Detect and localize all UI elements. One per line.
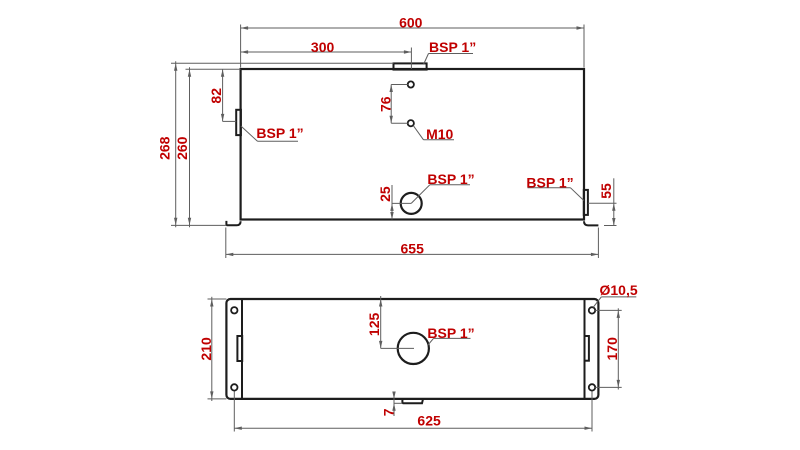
svg-text:55: 55 <box>598 183 614 199</box>
svg-text:210: 210 <box>198 337 214 361</box>
svg-text:BSP 1”: BSP 1” <box>427 171 474 187</box>
svg-text:7: 7 <box>381 408 397 416</box>
svg-text:125: 125 <box>366 313 382 337</box>
svg-text:82: 82 <box>208 88 224 104</box>
svg-text:25: 25 <box>377 186 393 202</box>
svg-text:BSP 1”: BSP 1” <box>526 174 573 190</box>
svg-text:BSP 1”: BSP 1” <box>256 125 303 141</box>
svg-text:76: 76 <box>377 96 393 112</box>
svg-text:BSP 1”: BSP 1” <box>429 39 476 55</box>
svg-text:M10: M10 <box>426 126 453 142</box>
svg-text:300: 300 <box>311 39 335 55</box>
svg-text:625: 625 <box>417 413 441 429</box>
svg-text:655: 655 <box>401 240 425 256</box>
svg-text:600: 600 <box>399 15 423 31</box>
svg-text:170: 170 <box>604 337 620 361</box>
svg-text:BSP 1”: BSP 1” <box>427 325 474 341</box>
svg-text:260: 260 <box>174 136 190 160</box>
svg-text:268: 268 <box>157 136 173 160</box>
svg-text:Ø10,5: Ø10,5 <box>600 282 638 298</box>
